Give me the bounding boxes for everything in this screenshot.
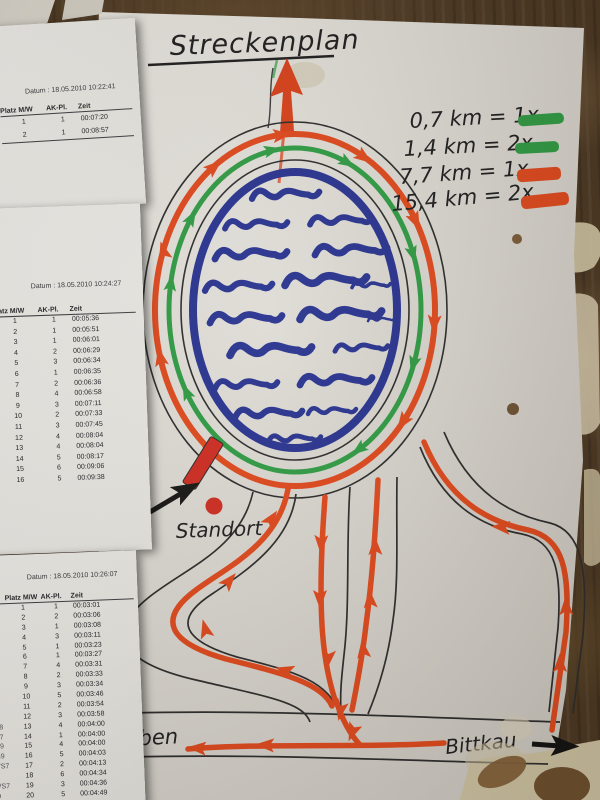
cell-ak: 1 <box>47 125 80 140</box>
cell-zeit: 00:04:49 <box>78 787 132 799</box>
cell-name-fragment: V8 <box>0 723 10 733</box>
result-sheet-1: Datum : 18.05.2010 10:22:41 Platz M/W AK… <box>0 18 146 213</box>
col-header-platz: Platz M/W <box>0 105 46 115</box>
datum-value: 18.05.2010 10:22:41 <box>51 83 116 94</box>
datum-value: 18.05.2010 10:26:07 <box>53 571 117 580</box>
col-header-zeit: Zeit <box>70 591 124 600</box>
datum-line: Datum : 18.05.2010 10:26:07 <box>27 571 118 581</box>
cell-platz: 16 <box>0 475 44 487</box>
cell-name-fragment: N9 <box>0 752 11 762</box>
photo-scene: Streckenplan <box>0 0 600 800</box>
col-header-ak: AK-Pl. <box>37 306 69 314</box>
col-header-ak: AK-Pl. <box>40 593 70 601</box>
cell-zeit: 00:08:57 <box>79 122 132 138</box>
cell-name-fragment: 9 <box>0 772 12 782</box>
cell-name-fragment: 9 <box>0 713 9 723</box>
standort-label: Standort <box>175 516 263 543</box>
result-table: Platz M/W AK-Pl. Zeit 1 1 00:05:36 2 1 0 <box>0 304 142 487</box>
cell-name-fragment: 9 <box>0 792 12 800</box>
col-header-platz: Platz M/W <box>0 307 38 316</box>
cell-name-fragment: S7 <box>0 733 10 743</box>
cell-name-fragment: VS7 <box>0 782 12 792</box>
standort-dot <box>206 498 223 515</box>
datum-label: Datum : <box>31 282 56 290</box>
datum-label: Datum : <box>27 573 52 581</box>
cell-platz: 20 <box>12 791 48 800</box>
col-header-ak: AK-Pl. <box>46 103 78 112</box>
cell-name-fragment: VS7 <box>0 762 11 772</box>
result-sheet-3: Datum : 18.05.2010 10:26:07 Platz M/W AK… <box>0 550 146 800</box>
result-table: Platz M/W AK-Pl. Zeit 1 1 00:03:01 3 2 <box>0 590 141 800</box>
col-header-zeit: Zeit <box>69 304 121 313</box>
result-sheet-2: Datum : 18.05.2010 10:24:27 Platz M/W AK… <box>0 203 152 554</box>
cell-ak: 5 <box>48 789 78 800</box>
table-body: 1 1 00:03:01 3 2 2 00:03:06 0 3 <box>0 599 141 800</box>
legend-swatch-2 <box>515 141 560 154</box>
cell-ak: 5 <box>43 474 75 486</box>
datum-value: 18.05.2010 10:24:27 <box>57 280 121 289</box>
bittkau-arrow-icon <box>532 744 560 746</box>
result-table: Platz M/W AK-Pl. Zeit 1 1 00:07:20 2 1 0 <box>0 100 134 144</box>
col-header-platz: Platz M/W <box>5 594 41 602</box>
datum-label: Datum : <box>25 87 50 95</box>
cell-name-fragment: V9 <box>0 743 11 753</box>
cell-zeit: 00:09:38 <box>75 472 127 484</box>
datum-line: Datum : 18.05.2010 10:22:41 <box>25 83 116 96</box>
datum-line: Datum : 18.05.2010 10:24:27 <box>31 280 122 290</box>
cell-platz: 2 <box>1 127 48 143</box>
table-body: 1 1 00:05:36 2 1 00:05:51 3 1 00:06:01 <box>0 313 142 487</box>
